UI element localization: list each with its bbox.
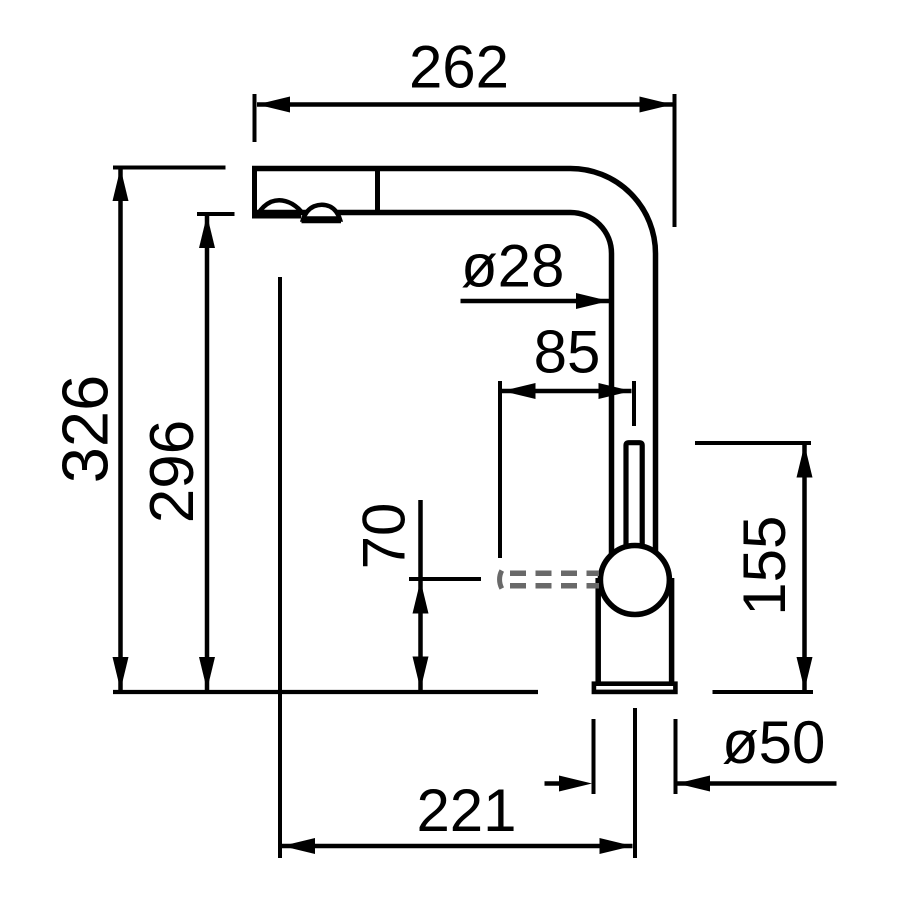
svg-text:326: 326 [49,375,122,483]
svg-text:296: 296 [138,420,207,523]
svg-text:ø50: ø50 [722,709,825,776]
svg-text:155: 155 [731,516,798,616]
svg-text:ø28: ø28 [461,233,564,300]
svg-text:221: 221 [416,777,516,844]
svg-text:70: 70 [351,503,418,570]
svg-text:262: 262 [409,34,509,101]
svg-text:85: 85 [534,318,601,385]
